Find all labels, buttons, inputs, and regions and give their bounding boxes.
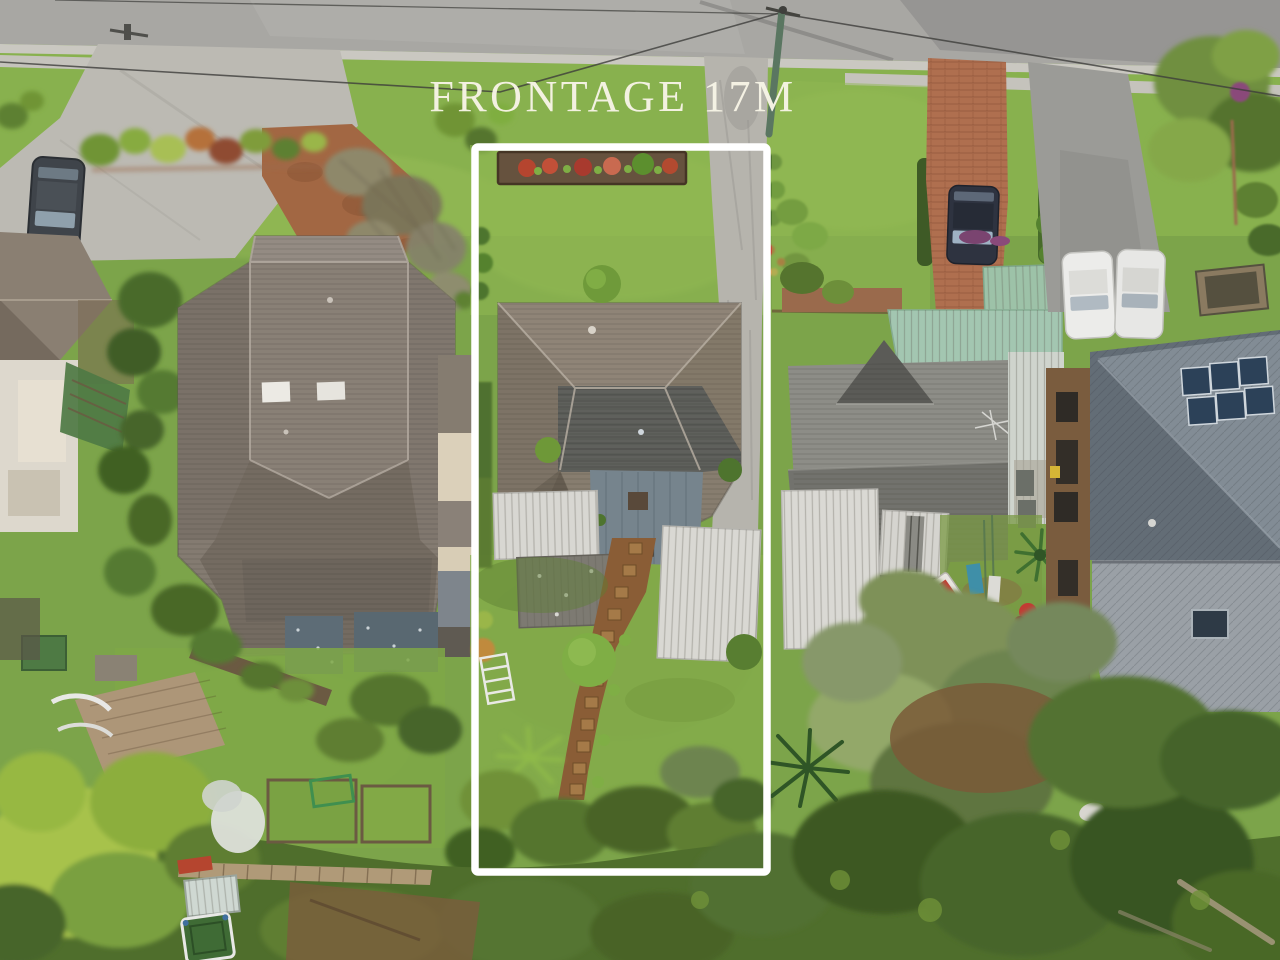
parked-white-car xyxy=(1114,249,1165,339)
skylight xyxy=(317,382,346,401)
meter-box xyxy=(1050,466,1060,478)
parked-white-car xyxy=(1062,251,1116,339)
aerial-photo: FRONTAGE 17M xyxy=(0,0,1280,960)
roof-vent xyxy=(588,326,596,334)
frontage-label: FRONTAGE 17M xyxy=(429,72,796,121)
front-garden-bed xyxy=(498,152,686,184)
trampoline xyxy=(181,913,235,960)
garage-mint-roof xyxy=(983,265,1055,313)
carport-white xyxy=(493,491,599,560)
skylight xyxy=(262,382,291,403)
parked-dark-car xyxy=(947,185,1000,265)
window xyxy=(1192,610,1228,638)
garden-shed xyxy=(184,875,239,916)
trailer xyxy=(1196,265,1268,316)
street-tree xyxy=(1148,30,1280,182)
